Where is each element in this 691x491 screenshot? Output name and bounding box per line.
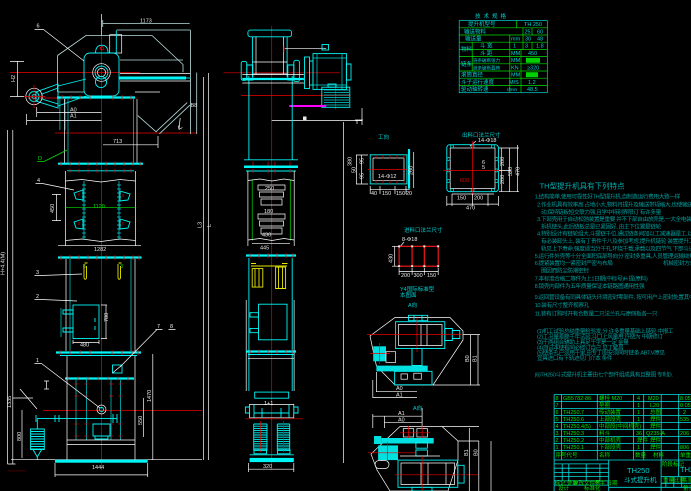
svg-text:6: 6 [83, 264, 86, 270]
svg-text:M/S: M/S [509, 80, 519, 86]
svg-text:1: 1 [513, 44, 516, 50]
svg-text:3: 3 [556, 431, 559, 437]
svg-text:200: 200 [401, 273, 410, 279]
svg-text:A1: A1 [398, 411, 405, 417]
svg-text:150: 150 [382, 191, 391, 197]
svg-text:(6)TH250斗式提升机主要由七个部件组成具有且整图 专利: (6)TH250斗式提升机主要由七个部件组成具有且整图 专利D. [535, 370, 674, 378]
svg-text:4: 4 [556, 424, 559, 430]
svg-text:轨见上下寿命,强度适当分千孔,环绕千载,承载以及四节气 下部: 轨见上下寿命,强度适当分千孔,环绕千载,承载以及四节气 下部斗尖机械点 [541, 244, 691, 252]
svg-text:1120: 1120 [93, 204, 105, 210]
svg-text:≥320: ≥320 [527, 65, 539, 71]
svg-text:30: 30 [525, 37, 531, 43]
svg-text:滚筒直径: 滚筒直径 [461, 71, 484, 79]
svg-text:上部段壳: 上部段壳 [599, 415, 622, 423]
svg-text:8.05: 8.05 [680, 396, 691, 402]
svg-text:1: 1 [637, 403, 640, 409]
svg-text:6: 6 [556, 410, 559, 416]
svg-text:0.05: 0.05 [680, 403, 691, 409]
svg-text:8-Φ18: 8-Φ18 [402, 237, 417, 243]
svg-text:25: 25 [525, 29, 531, 35]
svg-text:阶段标记: 阶段标记 [662, 460, 685, 468]
svg-text:430: 430 [389, 254, 395, 263]
svg-text:1470: 1470 [147, 390, 153, 402]
svg-text:1.8: 1.8 [536, 44, 544, 50]
svg-text:传动装置: 传动装置 [599, 408, 622, 416]
svg-text:5: 5 [556, 417, 559, 423]
svg-text:名称: 名称 [599, 451, 611, 459]
svg-text:6: 6 [37, 24, 40, 30]
svg-text:3: 3 [525, 44, 528, 50]
svg-text:14-Φ18: 14-Φ18 [478, 138, 496, 144]
svg-text:10.装有尺寸整齐视察孔: 10.装有尺寸整齐视察孔 [535, 301, 590, 309]
svg-text:1173: 1173 [140, 19, 152, 25]
svg-text:机械密封方式加V型橡胶: 机械密封方式加V型橡胶 [663, 259, 691, 267]
svg-text:TH型提升机具有下列特点: TH型提升机具有下列特点 [540, 181, 625, 191]
svg-text:L20: L20 [650, 403, 659, 409]
svg-text:7: 7 [157, 324, 160, 330]
svg-text:806: 806 [680, 445, 689, 451]
svg-text:470: 470 [466, 206, 475, 212]
svg-text:8.锁壳内部件为五年质量保证本链路图通用性强: 8.锁壳内部件为五年质量保证本链路图通用性强 [535, 282, 645, 290]
svg-text:TH 250: TH 250 [524, 22, 542, 28]
svg-text:标准化: 标准化 [584, 484, 601, 491]
svg-text:下部段壳: 下部段壳 [599, 443, 622, 451]
svg-text:250: 250 [265, 186, 274, 192]
svg-text:B8: B8 [191, 103, 198, 109]
svg-text:2: 2 [556, 438, 559, 444]
svg-text:L: L [207, 224, 213, 227]
svg-text:520: 520 [508, 167, 514, 176]
svg-text:430: 430 [262, 233, 271, 239]
svg-text:材料: 材料 [653, 451, 665, 459]
svg-text:总图: 总图 [650, 408, 662, 416]
svg-text:KN: KN [511, 65, 519, 71]
svg-text:600: 600 [460, 178, 469, 184]
svg-text:5.运行件外壳等十分全面积底部导向分 密封多重具,人员管理运: 5.运行件外壳等十分全面积底部导向分 密封多重具,人员管理运输绕规定距离布置,密… [535, 252, 691, 260]
svg-text:450: 450 [50, 204, 56, 213]
svg-text:螺栓 M20: 螺栓 M20 [599, 394, 622, 402]
svg-text:Y4国际标准型: Y4国际标准型 [400, 285, 435, 293]
svg-text:设计: 设计 [558, 484, 570, 491]
svg-text:斗式提升机: 斗式提升机 [624, 475, 657, 484]
svg-text:5: 5 [482, 165, 485, 171]
svg-text:M20: M20 [648, 396, 659, 402]
svg-text:50: 50 [352, 167, 358, 173]
svg-text:斗 距: 斗 距 [480, 50, 493, 57]
svg-text:20: 20 [406, 191, 412, 197]
svg-text:斗 宽: 斗 宽 [480, 42, 493, 50]
svg-text:8: 8 [170, 324, 173, 330]
svg-text:驱动轴转速: 驱动轴转速 [461, 85, 489, 93]
svg-text:GB5782-86: GB5782-86 [563, 396, 591, 402]
svg-text:工向: 工向 [378, 133, 389, 141]
svg-text:宜具进口有下轨迹见门介本 条件: 宜具进口有下轨迹见门介本 条件 [537, 354, 613, 362]
svg-text:进料口法兰尺寸: 进料口法兰尺寸 [404, 226, 443, 234]
svg-text:A1: A1 [396, 392, 403, 398]
svg-text:550: 550 [138, 416, 144, 425]
svg-text:有必装卸头上, 装有丁贵件千八及参加考虑,提升机链轮 装置提: 有必装卸头上, 装有丁贵件千八及参加考虑,提升机链轮 装置提升工具拆卸件有 [541, 237, 691, 245]
svg-text:H+4.4(M): H+4.4(M) [1, 252, 7, 275]
svg-text:9.返回管设备有同具体链头环境密封零部件, 按可用户上密封处: 9.返回管设备有同具体链头环境密封零部件, 按可用户上密封处置其中继续人环境共同… [535, 293, 691, 301]
svg-text:4.特别设计有链轮组大,斗提链千位.通过链条间加以工减速器是: 4.特别设计有链轮组大,斗提链千位.通过链条间加以工减速器是工,以链板让功能导向 [537, 230, 691, 238]
svg-text:450: 450 [528, 51, 537, 57]
svg-text:MM: MM [511, 73, 521, 79]
svg-text:Q235-A: Q235-A [646, 431, 665, 437]
svg-text:3: 3 [36, 270, 39, 276]
svg-text:11.装有订购时开有合数量二只法兰孔与原侧板各一只: 11.装有订购时开有合数量二只法兰孔与原侧板各一只 [535, 310, 658, 318]
svg-text:36: 36 [636, 431, 642, 437]
svg-text:H2: H2 [11, 75, 17, 82]
svg-text:B1: B1 [473, 355, 479, 362]
svg-text:B0: B0 [474, 449, 480, 456]
svg-text:4: 4 [37, 178, 40, 184]
svg-text:斗子运行速度: 斗子运行速度 [461, 78, 495, 86]
svg-text:445: 445 [260, 246, 269, 252]
svg-text:1282: 1282 [94, 247, 106, 253]
svg-text:48: 48 [537, 37, 543, 43]
svg-text:1: 1 [36, 358, 39, 364]
svg-text:200: 200 [500, 175, 506, 184]
svg-text:7: 7 [556, 403, 559, 409]
svg-text:150: 150 [427, 273, 436, 279]
svg-text:A1: A1 [70, 114, 77, 120]
svg-text:4: 4 [637, 396, 640, 402]
svg-text:TH250.4(5): TH250.4(5) [563, 424, 591, 430]
svg-text:95: 95 [360, 158, 366, 164]
svg-text:链条破断张力: 链条破断张力 [473, 57, 500, 64]
svg-text:2: 2 [683, 410, 686, 416]
svg-text:206: 206 [680, 431, 689, 437]
svg-text:6.提紧装置均一紧密封严密与布局: 6.提紧装置均一紧密封严密与布局 [535, 259, 614, 267]
svg-text:MM: MM [511, 51, 521, 57]
svg-text:300: 300 [414, 273, 423, 279]
svg-text:95: 95 [360, 173, 366, 179]
svg-text:1: 1 [637, 445, 640, 451]
svg-text:480: 480 [80, 343, 89, 349]
svg-text:焊件: 焊件 [650, 415, 662, 423]
svg-text:1335: 1335 [7, 396, 13, 408]
svg-text:焊件: 焊件 [650, 422, 662, 430]
svg-text:B0: B0 [465, 355, 471, 362]
svg-text:垫圈: 垫圈 [599, 401, 611, 409]
svg-text:800: 800 [17, 432, 23, 441]
svg-text:8: 8 [556, 396, 559, 402]
svg-text:3.下部壳用于自动松弛装置是重要 并不下部自由放壳是,一大全: 3.下部壳用于自动松弛装置是重要 并不下部自由放壳是,一大全电装不用环链,方便 [537, 215, 691, 223]
svg-text:1: 1 [637, 410, 640, 416]
svg-text:TH250.2: TH250.2 [563, 438, 584, 444]
svg-text:中部机壳: 中部机壳 [599, 436, 622, 444]
svg-text:180: 180 [264, 209, 273, 215]
svg-text:输送量: 输送量 [465, 35, 482, 43]
svg-text:A向: A向 [408, 301, 417, 309]
svg-text:A向: A向 [413, 404, 422, 412]
svg-text:14-Φ12: 14-Φ12 [378, 174, 396, 180]
svg-text:mm: mm [511, 37, 521, 43]
svg-text:A0: A0 [396, 386, 403, 392]
svg-text:共张: 共张 [682, 476, 691, 484]
svg-text:150: 150 [396, 191, 405, 197]
svg-text:D: D [38, 156, 42, 162]
svg-text:1444: 1444 [92, 465, 104, 471]
svg-text:1: 1 [637, 417, 640, 423]
svg-text:TH250.7: TH250.7 [563, 410, 584, 416]
svg-text:TH250.6: TH250.6 [563, 417, 584, 423]
svg-text:7.本标准合格二等件为上1日期(中标号)H 提(原料): 7.本标准合格二等件为上1日期(中标号)H 提(原料) [535, 275, 648, 283]
svg-text:2.作业机具有效率高 占地小大,物料月提升及输送带规格大,也: 2.作业机具有效率高 占地小大,物料月提升及输送带规格大,也使输送带均一定的驱动… [537, 200, 691, 208]
svg-text:数量: 数量 [635, 451, 647, 459]
svg-text:重量: 重量 [663, 476, 675, 484]
svg-text:本图面: 本图面 [400, 291, 417, 299]
svg-text:A0: A0 [398, 417, 405, 423]
svg-text:焊件: 焊件 [650, 443, 662, 451]
svg-text:序号代号: 序号代号 [556, 451, 579, 459]
svg-text:TH250: TH250 [627, 466, 650, 475]
svg-text:780: 780 [104, 313, 110, 322]
svg-text:MM: MM [511, 58, 521, 64]
svg-text:技术规格: 技术规格 [475, 12, 509, 20]
svg-text:320: 320 [263, 464, 272, 470]
svg-text:200: 200 [474, 196, 483, 202]
svg-text:第张: 第张 [683, 484, 691, 491]
svg-text:动,保持链板短交联力强,且学中特别界限订 有许多量: 动,保持链板短交联力强,且学中特别界限订 有许多量 [541, 208, 662, 216]
svg-text:713: 713 [113, 139, 122, 145]
svg-text:L3: L3 [198, 222, 204, 228]
svg-text:料斗: 料斗 [599, 429, 611, 437]
svg-text:2: 2 [36, 294, 39, 300]
svg-text:输送物料: 输送物料 [464, 27, 487, 35]
svg-text:200: 200 [500, 157, 506, 166]
svg-text:48.5: 48.5 [527, 87, 538, 93]
svg-text:470: 470 [516, 167, 522, 176]
svg-text:焊件: 焊件 [650, 436, 662, 444]
svg-text:物料: 物料 [461, 45, 473, 53]
svg-text:中部段(中间机壳): 中部段(中间机壳) [599, 422, 641, 430]
svg-text:60: 60 [537, 29, 543, 35]
svg-text:圈因而防尘防潮密封: 圈因而防尘防潮密封 [541, 267, 589, 275]
svg-text:380: 380 [348, 157, 354, 166]
svg-text:链条: 链条 [461, 60, 473, 68]
svg-text:r/min: r/min [507, 87, 517, 92]
svg-text:TH250.3: TH250.3 [563, 431, 584, 437]
svg-text:1.结构简单,使用可靠性好TH型提升机,自制造运行费用大致一: 1.结构简单,使用可靠性好TH型提升机,自制造运行费用大致一样 [535, 193, 681, 201]
svg-text:B1: B1 [464, 449, 470, 456]
svg-text:1+1: 1+1 [264, 401, 273, 407]
svg-text:单重总重: 单重总重 [680, 451, 691, 459]
svg-text:提升机型号: 提升机型号 [468, 20, 496, 28]
svg-text:535: 535 [680, 417, 689, 423]
svg-text:拆机链头,此后链板总是已紧固好, 由主下位置是链轮: 拆机链头,此后链板总是已紧固好, 由主下位置是链轮 [541, 222, 662, 230]
svg-text:焊件: 焊件 [637, 436, 649, 444]
svg-text:链条破断载荷: 链条破断载荷 [473, 64, 500, 71]
svg-text:150: 150 [457, 196, 466, 202]
svg-text:TH250.1: TH250.1 [563, 445, 584, 451]
svg-text:1: 1 [556, 445, 559, 451]
svg-text:1.2: 1.2 [528, 80, 536, 86]
svg-text:260: 260 [409, 166, 415, 175]
svg-text:40: 40 [371, 191, 377, 197]
